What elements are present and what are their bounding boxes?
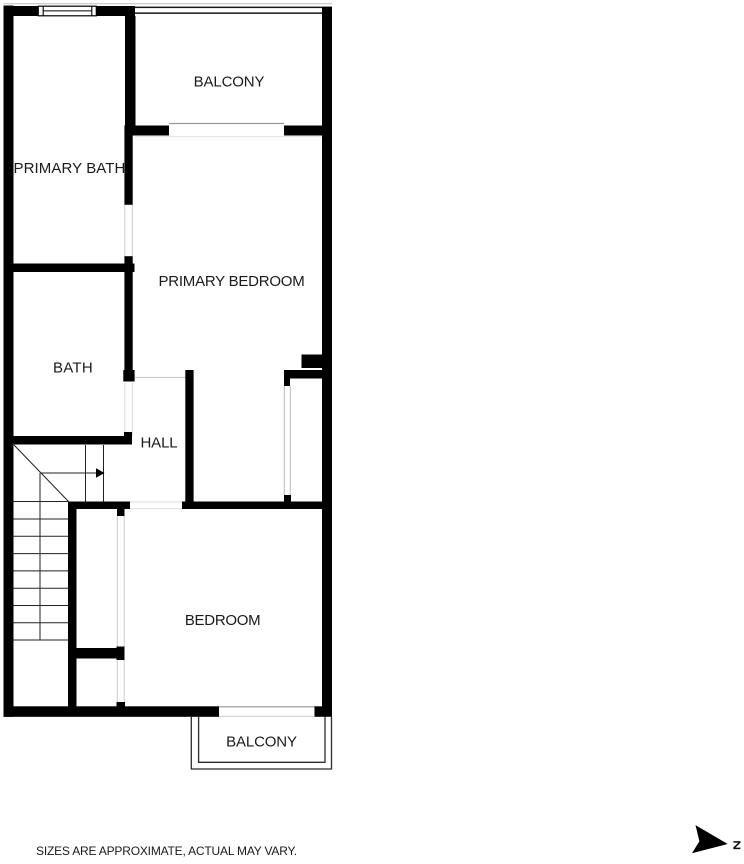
svg-text:PRIMARY BEDROOM: PRIMARY BEDROOM — [158, 273, 304, 290]
svg-text:PRIMARY BATH: PRIMARY BATH — [14, 160, 126, 177]
svg-text:BALCONY: BALCONY — [226, 734, 297, 751]
svg-text:SIZES ARE APPROXIMATE, ACTUAL: SIZES ARE APPROXIMATE, ACTUAL MAY VARY. — [36, 844, 297, 858]
svg-text:HALL: HALL — [140, 435, 177, 452]
svg-text:BALCONY: BALCONY — [194, 73, 265, 90]
svg-text:BATH: BATH — [53, 359, 93, 376]
svg-text:BEDROOM: BEDROOM — [185, 612, 261, 629]
